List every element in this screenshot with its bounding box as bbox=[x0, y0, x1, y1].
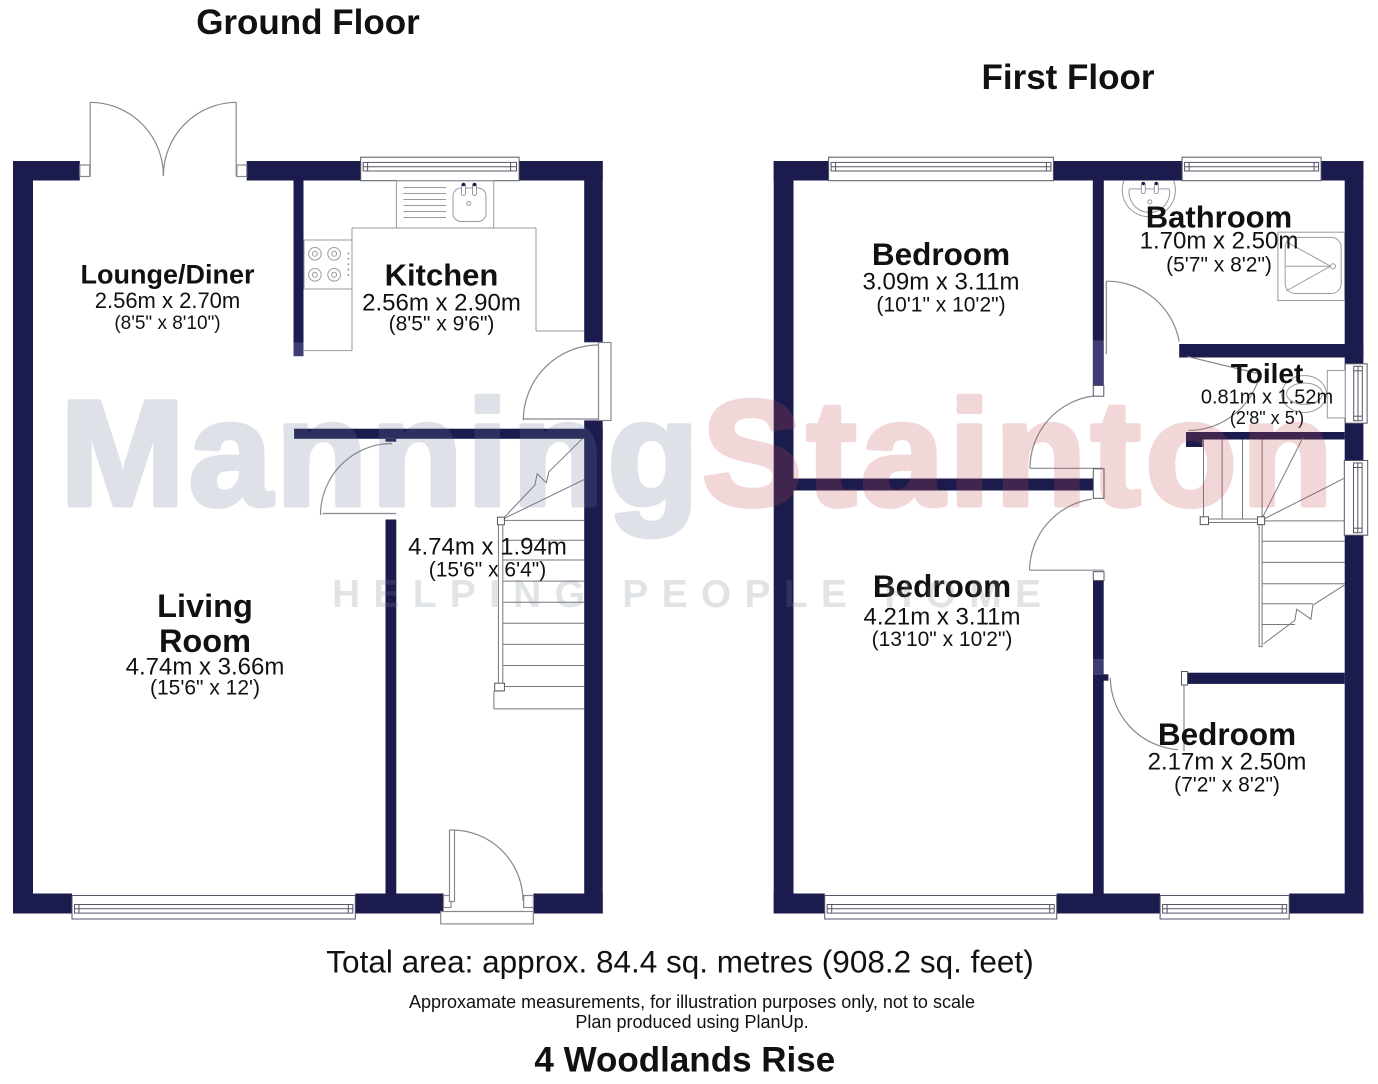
svg-text:First Floor: First Floor bbox=[981, 58, 1154, 97]
svg-text:Manning: Manning bbox=[60, 369, 699, 537]
svg-text:2.17m x 2.50m: 2.17m x 2.50m bbox=[1148, 749, 1307, 776]
svg-text:1.70m x 2.50m: 1.70m x 2.50m bbox=[1140, 228, 1299, 255]
svg-text:Bedroom: Bedroom bbox=[872, 236, 1010, 272]
svg-text:(7'2" x 8'2"): (7'2" x 8'2") bbox=[1174, 773, 1280, 796]
svg-text:(5'7" x 8'2"): (5'7" x 8'2") bbox=[1166, 253, 1272, 276]
svg-text:(8'5" x 9'6"): (8'5" x 9'6") bbox=[389, 312, 495, 335]
svg-text:Bedroom: Bedroom bbox=[1158, 716, 1296, 752]
svg-text:(8'5" x 8'10"): (8'5" x 8'10") bbox=[114, 313, 220, 334]
svg-text:4 Woodlands Rise: 4 Woodlands Rise bbox=[534, 1041, 835, 1080]
svg-text:(15'6" x 12'): (15'6" x 12') bbox=[150, 676, 260, 699]
svg-text:3.09m x 3.11m: 3.09m x 3.11m bbox=[863, 269, 1020, 296]
svg-text:Kitchen: Kitchen bbox=[385, 257, 499, 292]
svg-text:Lounge/Diner: Lounge/Diner bbox=[81, 260, 255, 290]
svg-text:Total area: approx. 84.4 sq. m: Total area: approx. 84.4 sq. metres (908… bbox=[326, 944, 1033, 980]
svg-text:Plan produced using PlanUp.: Plan produced using PlanUp. bbox=[575, 1012, 808, 1032]
svg-text:Living: Living bbox=[157, 588, 253, 624]
svg-text:Ground Floor: Ground Floor bbox=[196, 3, 420, 42]
svg-text:2.56m x 2.70m: 2.56m x 2.70m bbox=[95, 288, 241, 313]
svg-text:Approxamate measurements, for: Approxamate measurements, for illustrati… bbox=[409, 992, 975, 1012]
svg-text:(13'10" x 10'2"): (13'10" x 10'2") bbox=[872, 628, 1013, 651]
svg-text:4.74m x 1.94m: 4.74m x 1.94m bbox=[408, 534, 567, 561]
svg-text:(10'1" x 10'2"): (10'1" x 10'2") bbox=[876, 293, 1005, 316]
